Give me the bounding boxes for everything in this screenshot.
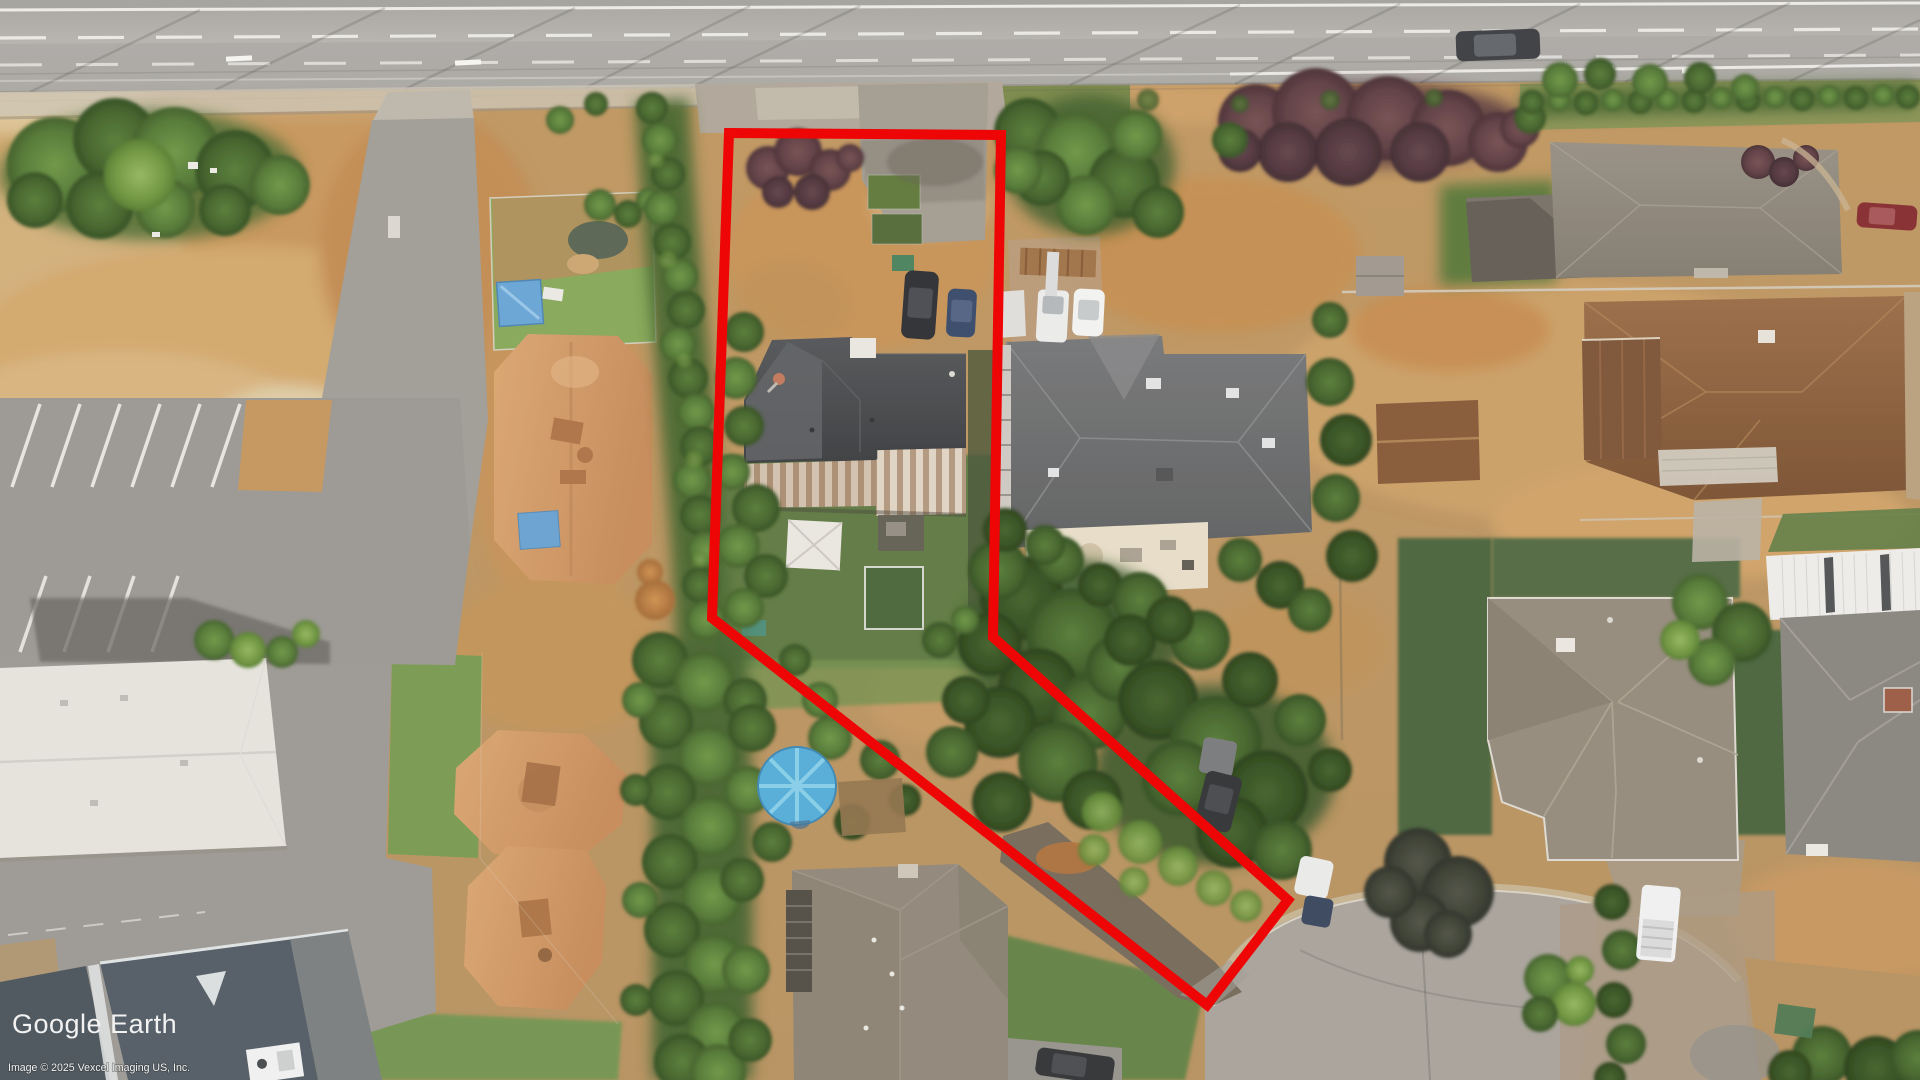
svg-text:Google Earth: Google Earth: [12, 1009, 177, 1039]
svg-text:Image © 2025 Vexcel Imaging US: Image © 2025 Vexcel Imaging US, Inc.: [8, 1062, 190, 1074]
